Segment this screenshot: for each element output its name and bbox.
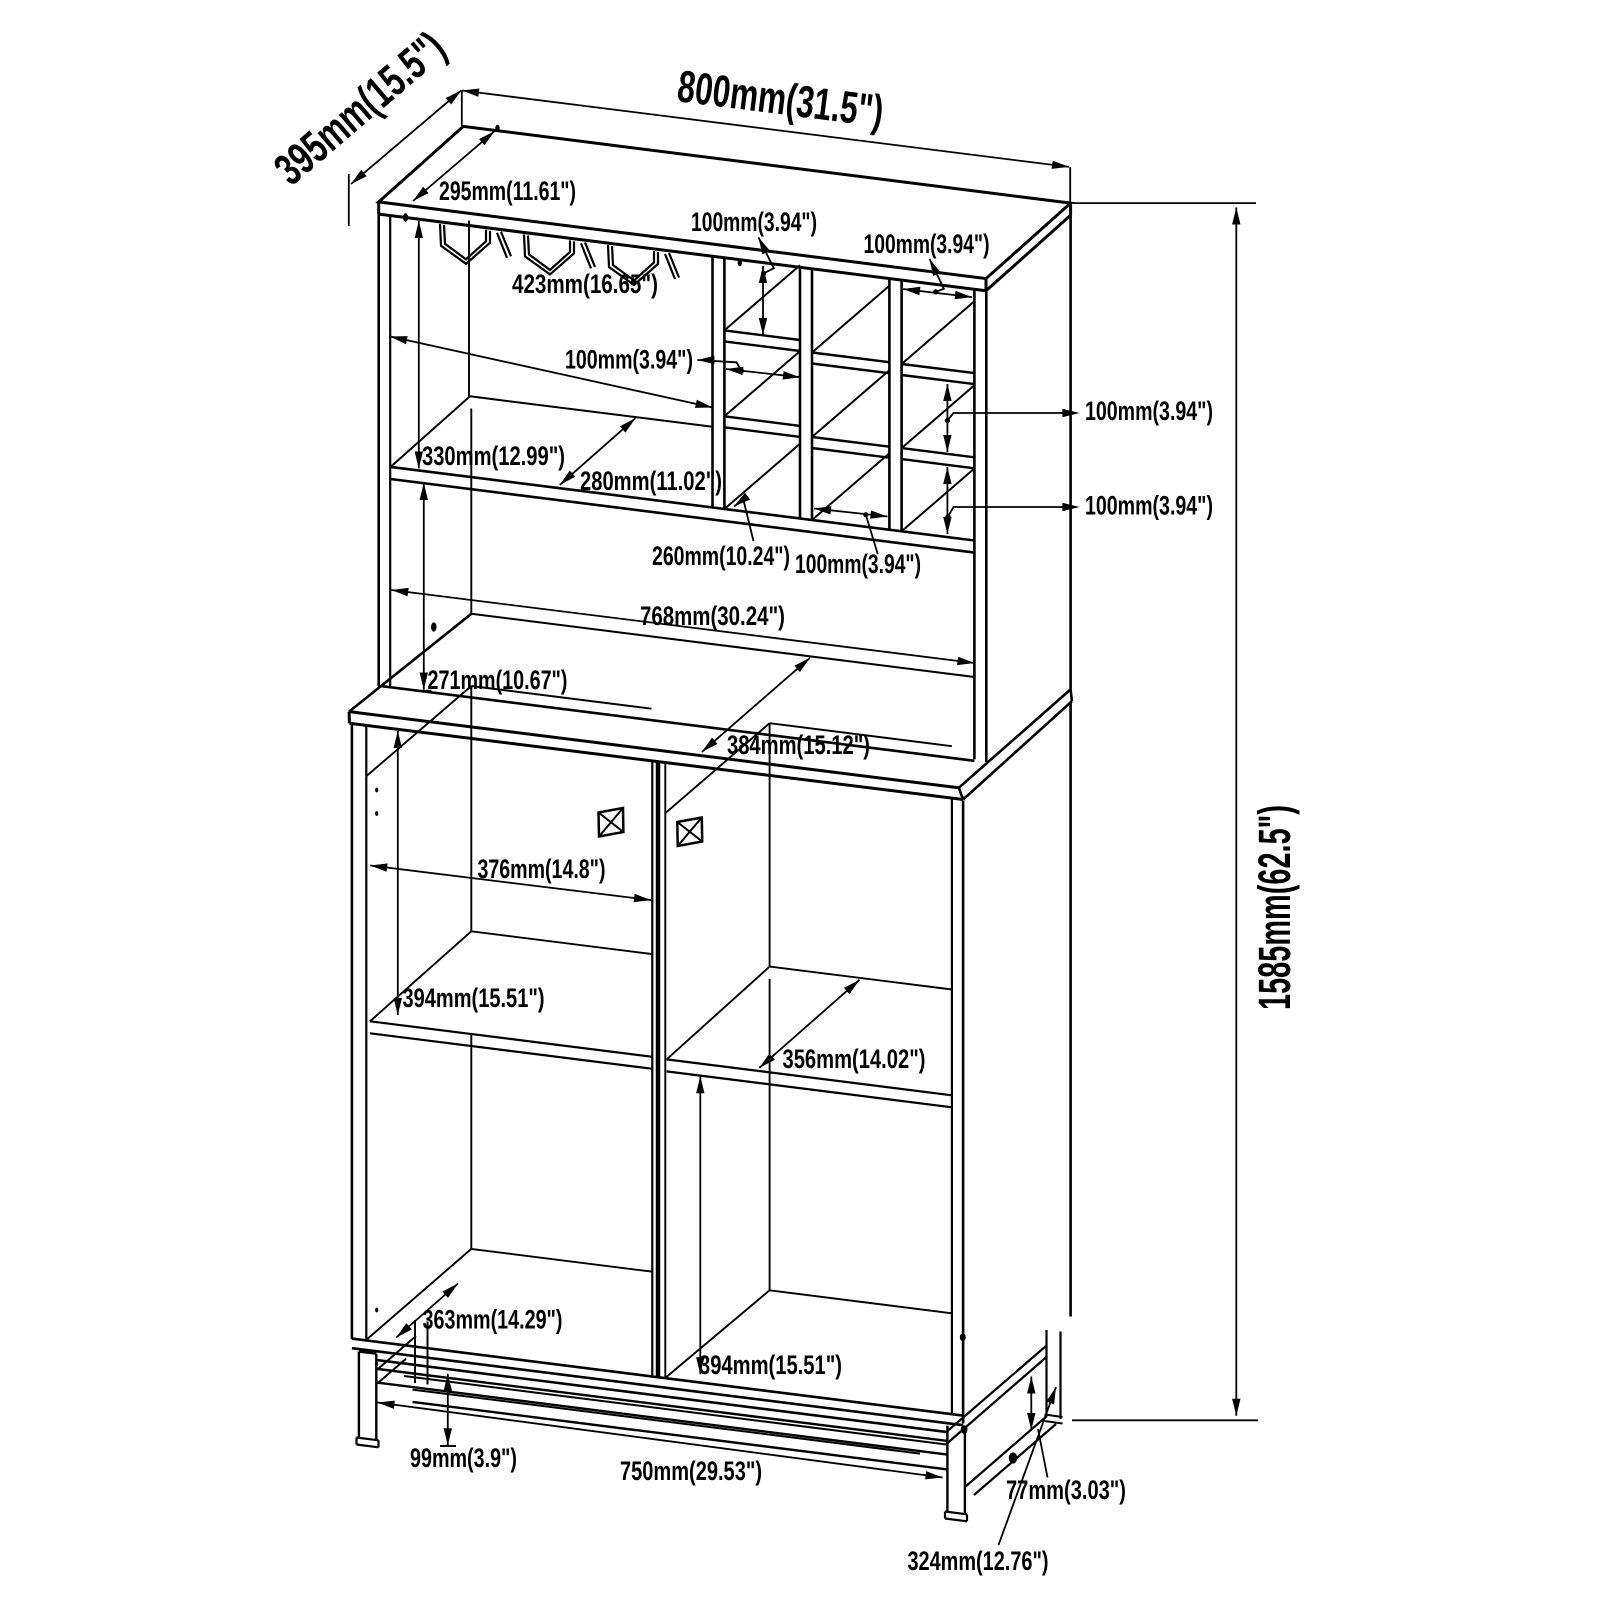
svg-text:394mm(15.51"): 394mm(15.51") — [699, 1350, 842, 1380]
svg-text:260mm(10.24"): 260mm(10.24") — [652, 541, 790, 571]
svg-text:77mm(3.03"): 77mm(3.03") — [1006, 1475, 1126, 1505]
svg-text:363mm(14.29"): 363mm(14.29") — [423, 1305, 563, 1335]
svg-text:324mm(12.76"): 324mm(12.76") — [908, 1546, 1049, 1576]
svg-text:100mm(3.94"): 100mm(3.94") — [1085, 491, 1213, 521]
svg-text:295mm(11.61"): 295mm(11.61") — [439, 176, 576, 206]
svg-text:100mm(3.94"): 100mm(3.94") — [565, 345, 693, 375]
svg-text:100mm(3.94"): 100mm(3.94") — [864, 229, 990, 259]
svg-text:376mm(14.8"): 376mm(14.8") — [478, 854, 606, 884]
svg-text:394mm(15.51"): 394mm(15.51") — [403, 983, 545, 1013]
svg-text:99mm(3.9"): 99mm(3.9") — [410, 1443, 517, 1473]
svg-text:768mm(30.24"): 768mm(30.24") — [640, 601, 785, 631]
svg-text:280mm(11.02"): 280mm(11.02") — [580, 466, 722, 496]
svg-text:1585mm(62.5"): 1585mm(62.5") — [1249, 805, 1300, 1010]
svg-text:356mm(14.02"): 356mm(14.02") — [783, 1044, 926, 1074]
svg-text:330mm(12.99"): 330mm(12.99") — [422, 441, 565, 471]
svg-text:100mm(3.94"): 100mm(3.94") — [691, 207, 817, 237]
svg-text:384mm(15.12"): 384mm(15.12") — [727, 730, 870, 760]
svg-text:423mm(16.65"): 423mm(16.65") — [512, 269, 658, 299]
svg-text:271mm(10.67"): 271mm(10.67") — [428, 665, 568, 695]
svg-text:100mm(3.94"): 100mm(3.94") — [1085, 396, 1213, 426]
svg-text:750mm(29.53"): 750mm(29.53") — [620, 1456, 762, 1486]
svg-text:100mm(3.94"): 100mm(3.94") — [795, 549, 921, 579]
